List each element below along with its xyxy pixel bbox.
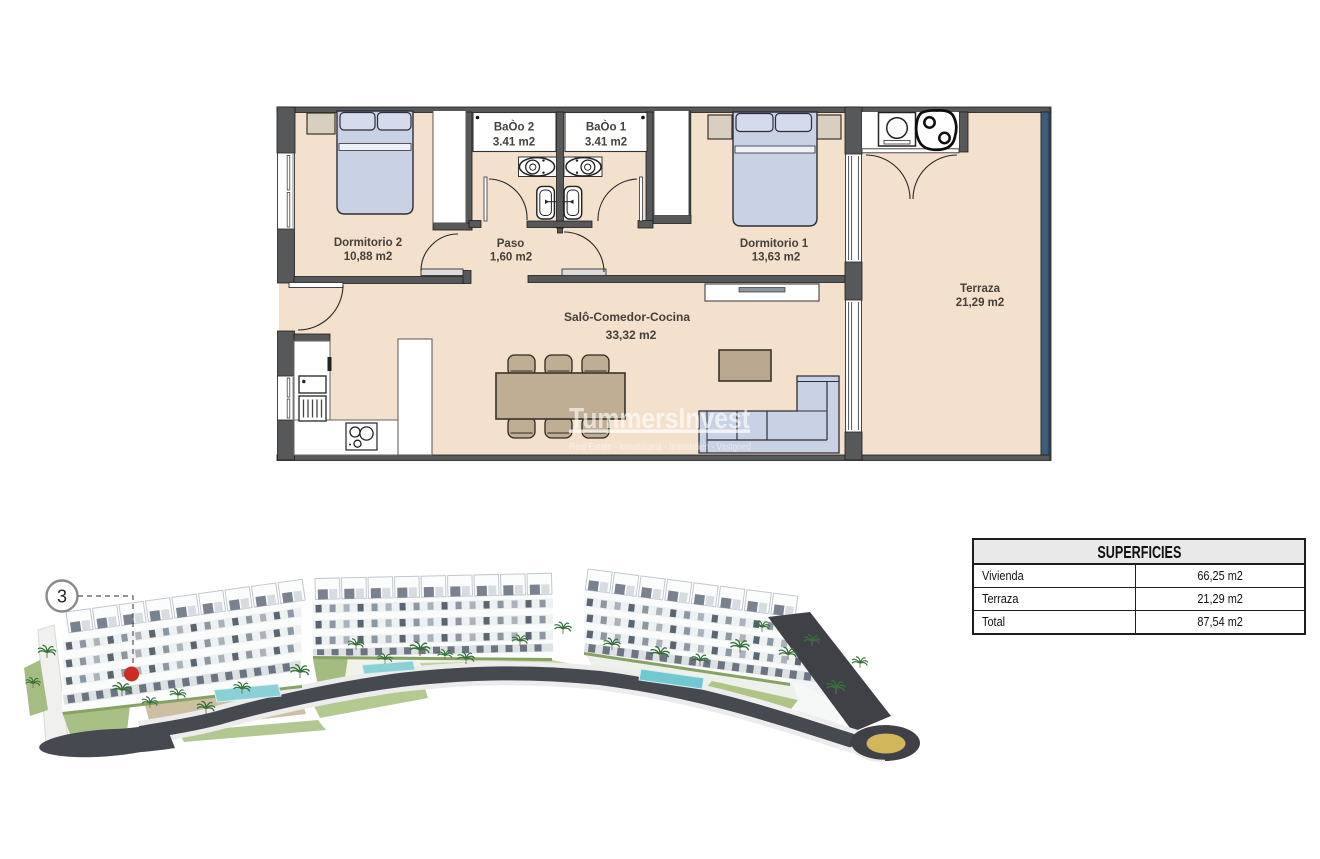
svg-text:Paso: Paso	[497, 238, 525, 250]
svg-text:Dormitorio 1: Dormitorio 1	[740, 238, 809, 250]
svg-text:21,29 m2: 21,29 m2	[956, 297, 1005, 309]
svg-text:33,32 m2: 33,32 m2	[606, 328, 657, 342]
svg-text:BaÒo 2: BaÒo 2	[494, 121, 534, 134]
svg-text:Salô-Comedor-Cocina: Salô-Comedor-Cocina	[564, 310, 690, 324]
svg-text:BaÒo 1: BaÒo 1	[586, 121, 627, 134]
svg-text:10,88 m2: 10,88 m2	[344, 251, 393, 263]
svg-text:1,60 m2: 1,60 m2	[490, 252, 532, 264]
svg-text:3: 3	[57, 587, 67, 607]
svg-text:Terraza: Terraza	[960, 283, 1001, 295]
svg-text:Dormitorio 2: Dormitorio 2	[334, 237, 402, 249]
svg-text:3.41 m2: 3.41 m2	[585, 137, 627, 149]
svg-text:3.41 m2: 3.41 m2	[493, 137, 535, 149]
svg-text:Real Estate - Inmobiliaria - I: Real Estate - Inmobiliaria - Immobilien …	[569, 441, 751, 453]
svg-text:13,63 m2: 13,63 m2	[752, 252, 801, 264]
